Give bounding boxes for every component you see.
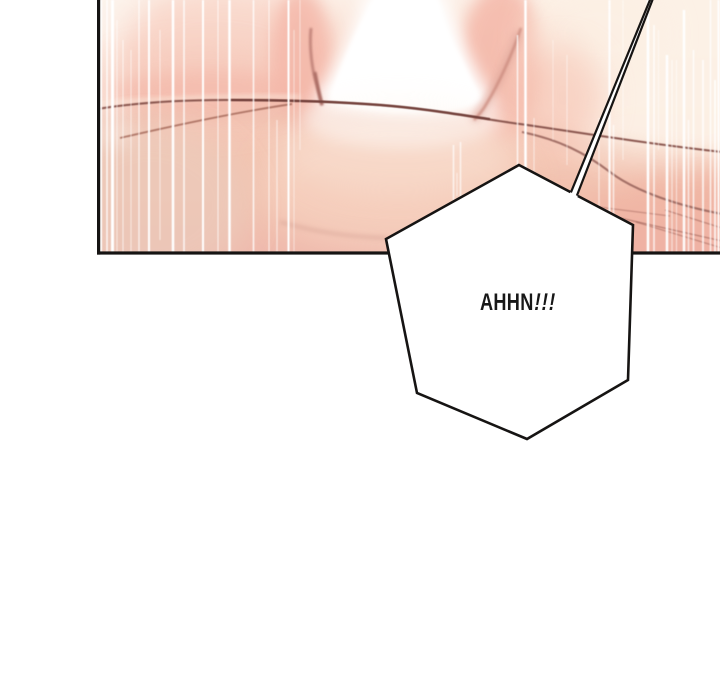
svg-text:AHHN: AHHN [480,289,534,316]
